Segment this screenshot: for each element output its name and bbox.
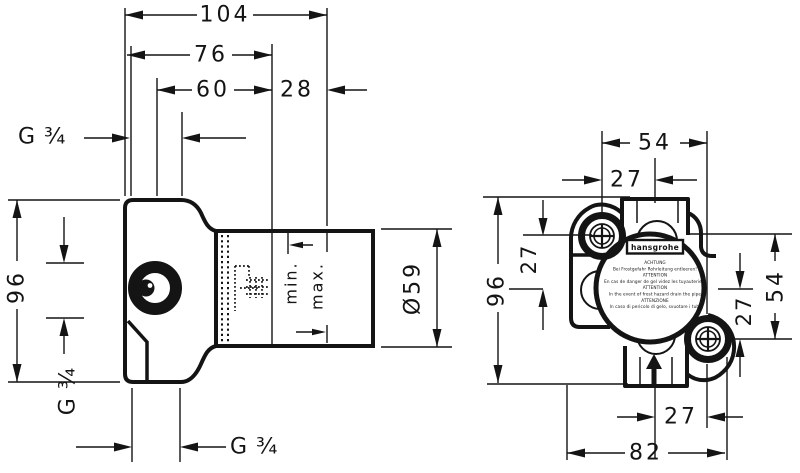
side-view: 104 76 60 28 G ¾ 96 G ¾ G ¾ min. max. Ø5… — [5, 3, 453, 463]
dim-27-right-label: 27 — [732, 296, 756, 327]
mounting-screw-top-left-icon — [582, 216, 623, 257]
dim-60-label: 60 — [196, 78, 230, 103]
warning-line: ACHTUNG — [644, 260, 666, 265]
warning-line: ATTENZIONE — [641, 298, 669, 303]
thread-bottom-label: G ¾ — [230, 435, 278, 460]
spindle-knob-highlight — [148, 283, 153, 288]
brand-label: hansgrohe — [631, 243, 679, 252]
valve-technical-drawing: 104 76 60 28 G ¾ 96 G ¾ G ¾ min. max. Ø5… — [0, 0, 800, 473]
min-label: min. — [282, 261, 301, 304]
dim-27-top-label: 27 — [610, 168, 644, 193]
dim-27-left-label: 27 — [517, 244, 541, 275]
front-view: hansgrohe ACHTUNG Bei Frostgefahr Rohrle… — [483, 131, 792, 466]
warning-line: En cas de danger de gel videz les tuyaut… — [604, 279, 706, 284]
max-label: max. — [308, 262, 327, 310]
dim-96-front-label: 96 — [485, 273, 510, 307]
thread-side-label: G ¾ — [56, 367, 81, 415]
dim-82-label: 82 — [629, 441, 663, 466]
dim-96-label: 96 — [5, 270, 30, 304]
technical-drawing-page: 104 76 60 28 G ¾ 96 G ¾ G ¾ min. max. Ø5… — [0, 0, 800, 473]
dim-28-label: 28 — [280, 78, 314, 103]
warning-line: ATTENTION — [643, 285, 667, 290]
warning-line: ATTENTION — [643, 273, 667, 278]
warning-line: Bei Frostgefahr Rohrleitung entleeren! — [613, 266, 697, 271]
dim-54-top-label: 54 — [638, 131, 672, 156]
dim-27-bottom-label: 27 — [664, 405, 698, 430]
mounting-screw-bottom-right-icon — [688, 319, 729, 360]
warning-line: In the event of frost hazard drain the p… — [609, 292, 701, 297]
thread-top-label: G ¾ — [18, 125, 66, 150]
dim-54-right-label: 54 — [764, 269, 789, 303]
warning-line: In caso di pericolo di gelo, svuotare i … — [610, 304, 701, 309]
dim-76-label: 76 — [194, 43, 228, 68]
dim-104-label: 104 — [200, 3, 251, 28]
dim-diameter-label: Ø59 — [401, 261, 426, 315]
